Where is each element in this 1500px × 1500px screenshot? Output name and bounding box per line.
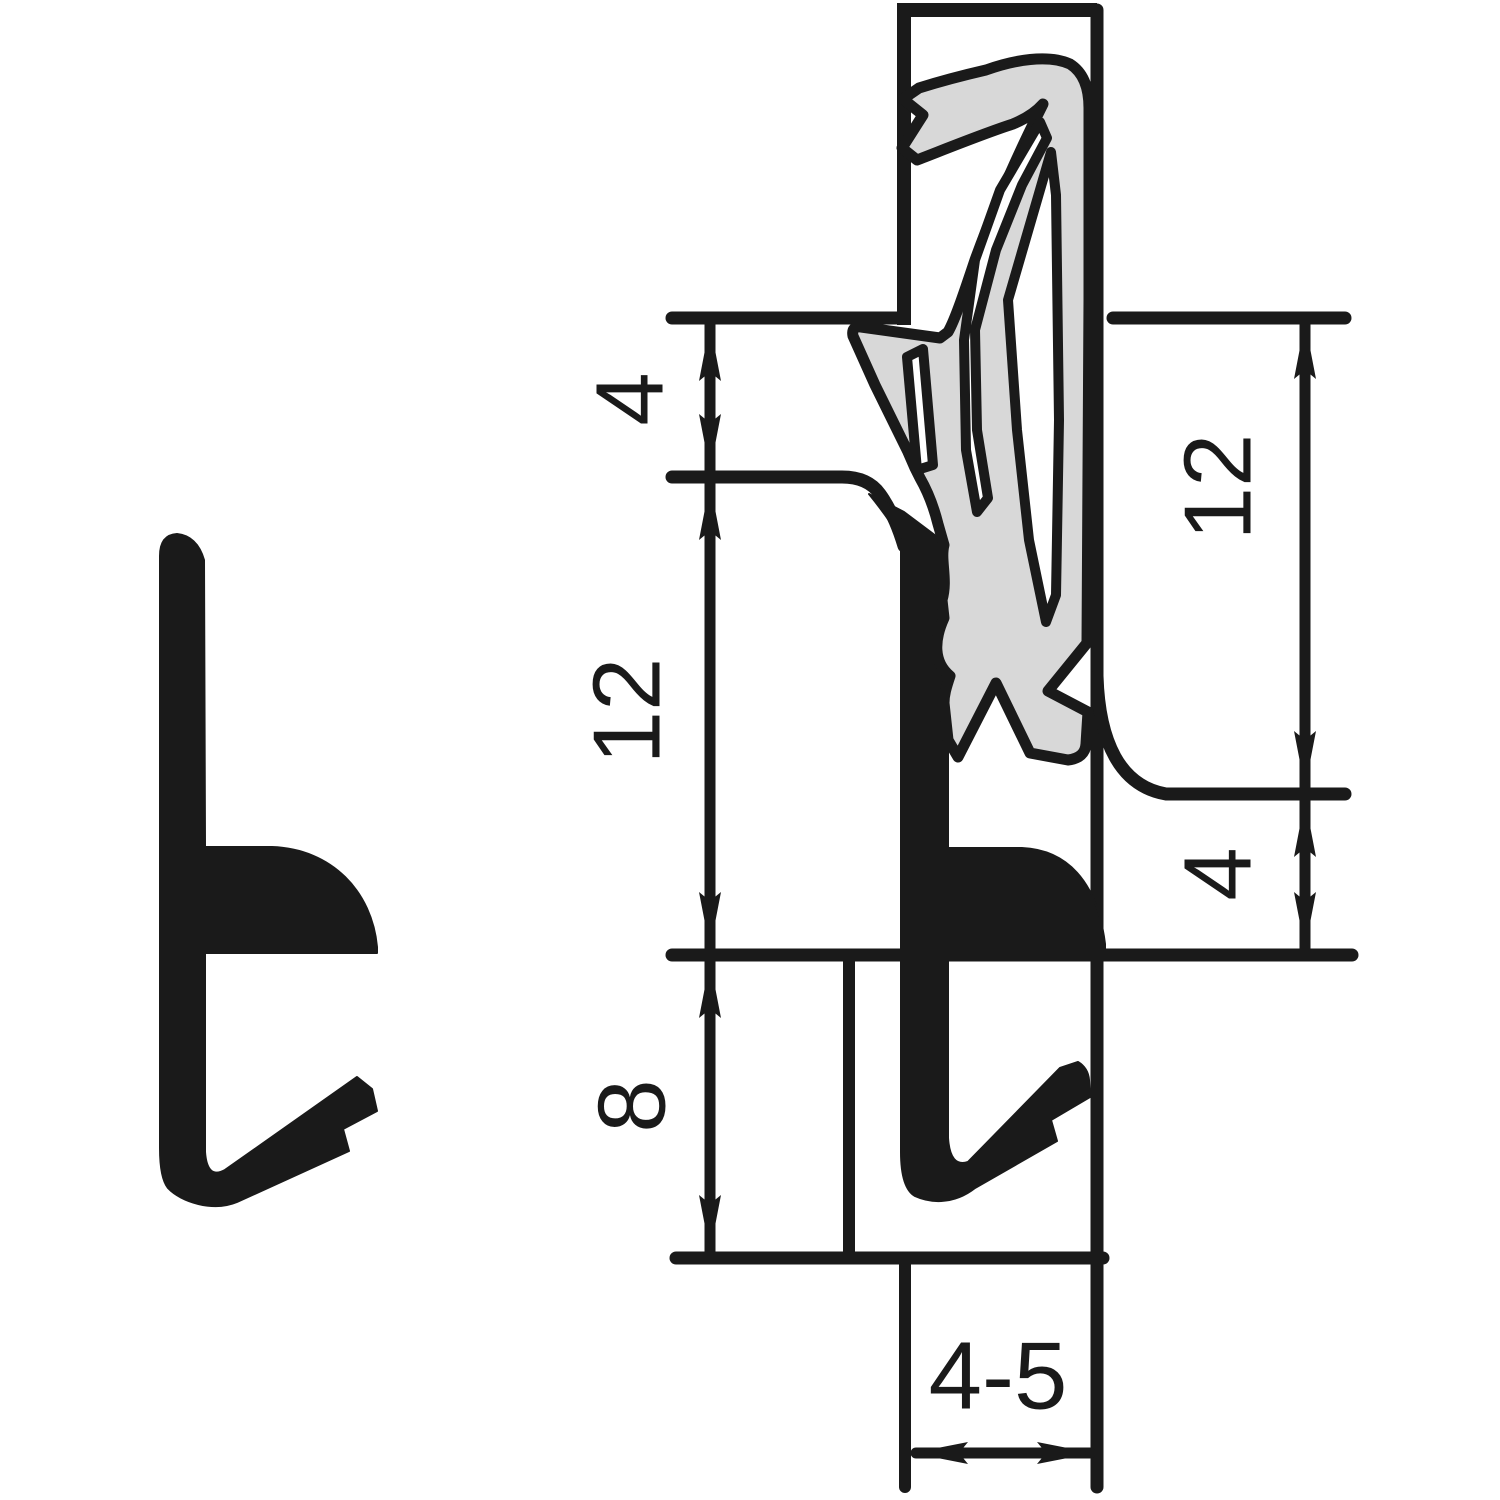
dim-label-left-4: 4 bbox=[577, 372, 684, 425]
dim-label-right-12: 12 bbox=[1165, 434, 1272, 541]
drawing-background bbox=[0, 0, 1500, 1500]
seal-hollow-fin-slot bbox=[907, 349, 933, 470]
dim-label-left-12: 12 bbox=[574, 658, 681, 765]
technical-drawing: 4 12 8 12 4 4-5 bbox=[0, 0, 1500, 1500]
dim-label-bottom-4-5: 4-5 bbox=[929, 1323, 1068, 1430]
dim-label-left-8: 8 bbox=[579, 1079, 686, 1132]
dim-label-right-4: 4 bbox=[1165, 847, 1272, 900]
